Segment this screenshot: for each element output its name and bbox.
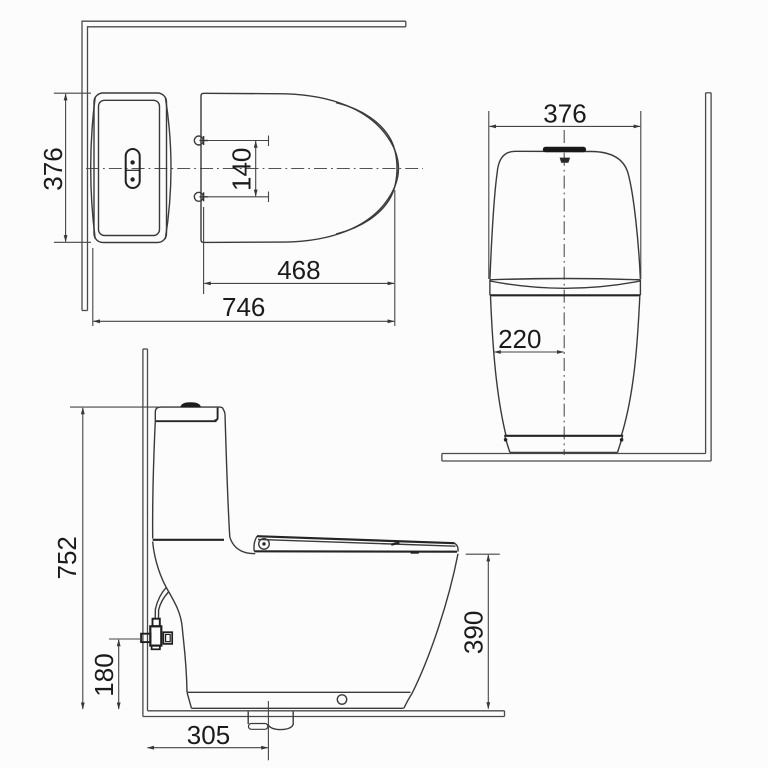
svg-text:140: 140 — [226, 148, 256, 191]
svg-text:390: 390 — [459, 611, 489, 654]
svg-text:376: 376 — [543, 99, 586, 129]
svg-text:376: 376 — [38, 147, 68, 190]
svg-text:220: 220 — [498, 324, 541, 354]
svg-text:746: 746 — [222, 292, 265, 322]
svg-text:752: 752 — [52, 536, 82, 579]
svg-text:305: 305 — [187, 720, 230, 750]
svg-text:468: 468 — [277, 255, 320, 285]
svg-text:180: 180 — [89, 653, 119, 696]
